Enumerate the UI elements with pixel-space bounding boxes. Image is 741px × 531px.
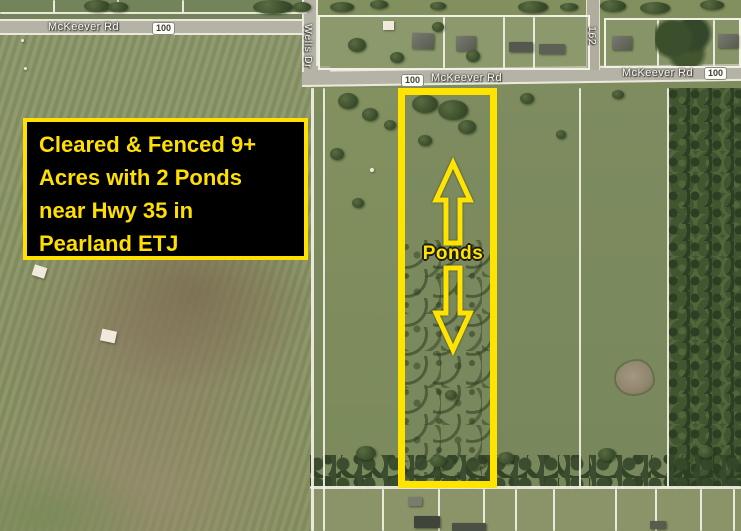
- field-left-green-corner: [0, 455, 150, 531]
- house: [412, 33, 435, 50]
- route-shield-100-west: 100: [152, 22, 175, 35]
- tree-cluster: [655, 20, 713, 66]
- post: [21, 39, 24, 42]
- pond: [616, 361, 653, 394]
- parcel-line: [323, 88, 325, 531]
- parcel-line: [533, 17, 535, 68]
- tree: [520, 93, 534, 104]
- parcel-line: [503, 17, 505, 68]
- tree: [556, 130, 566, 139]
- shed: [383, 21, 394, 30]
- tree: [600, 0, 626, 12]
- parcel-line: [579, 88, 581, 488]
- tree: [466, 50, 480, 62]
- tree: [598, 448, 616, 461]
- road-label-mckeever-east: McKeever Rd: [622, 67, 693, 79]
- tree: [352, 198, 364, 208]
- tree: [293, 2, 311, 12]
- arrow-up-icon: [436, 163, 470, 243]
- road-label-162: 162: [586, 26, 598, 62]
- parcel-line: [382, 489, 384, 531]
- tree: [700, 0, 724, 10]
- route-shield-100-east: 100: [704, 67, 727, 80]
- house: [456, 36, 476, 51]
- arrow-down-icon: [436, 268, 470, 350]
- forest: [668, 88, 741, 487]
- post: [370, 168, 374, 172]
- tree: [430, 2, 446, 10]
- callout-line-3: near Hwy 35 in: [39, 194, 304, 227]
- house: [539, 44, 565, 54]
- tree: [384, 120, 396, 130]
- tree: [84, 0, 110, 12]
- tree: [253, 0, 293, 14]
- house: [612, 36, 632, 50]
- road-label-mckeever-mid: McKeever Rd: [431, 72, 502, 84]
- house: [509, 42, 533, 52]
- outbuilding: [650, 521, 666, 529]
- tree: [362, 108, 378, 121]
- tree: [432, 22, 444, 32]
- tree: [356, 446, 376, 460]
- tree: [640, 2, 670, 14]
- tree: [390, 52, 404, 63]
- tree: [348, 38, 366, 52]
- parcel-line: [733, 489, 735, 531]
- callout-line-4: Pearland ETJ: [39, 227, 304, 260]
- callout-line-1: Cleared & Fenced 9+: [39, 128, 304, 161]
- road-label-mckeever-west: McKeever Rd: [48, 21, 119, 33]
- tree: [560, 3, 578, 11]
- callout-box: Cleared & Fenced 9+ Acres with 2 Ponds n…: [23, 118, 308, 260]
- tree: [698, 446, 714, 458]
- aerial-map: McKeever Rd 100 Wells Dr 100 McKeever Rd…: [0, 0, 741, 531]
- parcel-line: [515, 489, 517, 531]
- tree: [370, 0, 388, 9]
- outbuilding: [408, 497, 422, 506]
- tree: [612, 90, 624, 99]
- house: [718, 34, 738, 48]
- parcel-line: [310, 486, 741, 489]
- field-bottom-strip: [310, 487, 741, 531]
- tree-line-bottom: [310, 455, 741, 489]
- road-label-wells-dr: Wells Dr: [302, 24, 314, 80]
- outbuilding: [414, 516, 440, 528]
- parcel-line: [615, 489, 617, 531]
- parcel-line: [667, 88, 669, 488]
- callout-line-2: Acres with 2 Ponds: [39, 161, 304, 194]
- parcel-line: [311, 88, 314, 531]
- tree: [498, 452, 514, 464]
- post: [24, 67, 27, 70]
- ponds-label: Ponds: [403, 243, 503, 265]
- parcel-line: [713, 20, 715, 66]
- parcel-line: [700, 489, 702, 531]
- tree: [108, 2, 128, 12]
- tree: [338, 93, 358, 109]
- tree: [330, 148, 344, 160]
- tree: [518, 1, 548, 13]
- tree: [330, 2, 354, 12]
- parcel-line: [553, 489, 555, 531]
- outbuilding: [452, 523, 486, 531]
- route-shield-100-mid: 100: [401, 74, 424, 87]
